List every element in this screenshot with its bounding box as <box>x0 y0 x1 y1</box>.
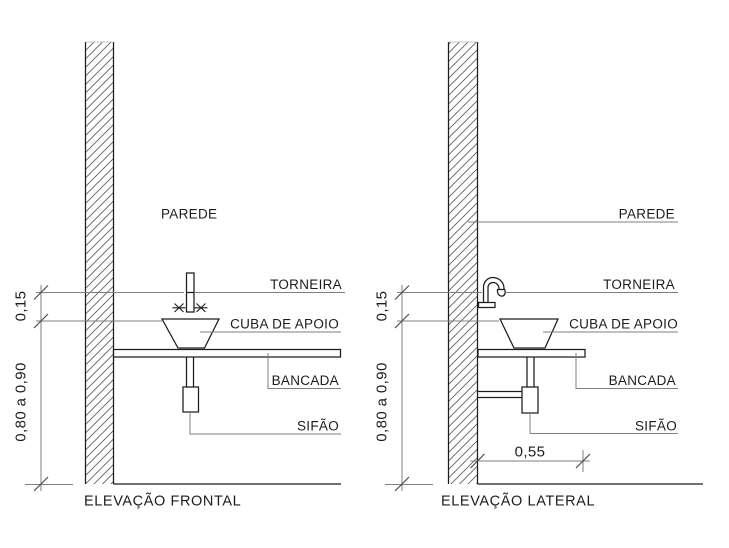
trap-side <box>522 387 538 413</box>
trap-front <box>183 387 199 412</box>
front-label-trap: SIFÃO <box>297 419 339 434</box>
elevation-drawing-canvas: 0,15 0,80 a 0,90 PAREDE TORNEIRA CUBA DE… <box>0 0 729 548</box>
side-label-trap: SIFÃO <box>635 419 677 434</box>
front-label-faucet: TORNEIRA <box>270 277 342 292</box>
side-label-faucet: TORNEIRA <box>603 277 675 292</box>
side-dim-countertop-height: 0,80 a 0,90 <box>374 362 391 441</box>
side-dim-countertop-depth: 0,55 <box>515 444 546 461</box>
front-dim-countertop-height: 0,80 a 0,90 <box>13 362 30 441</box>
technical-drawing: 0,15 0,80 a 0,90 PAREDE TORNEIRA CUBA DE… <box>0 0 729 548</box>
wall-section <box>86 42 114 484</box>
side-label-countertop: BANCADA <box>609 373 676 388</box>
side-elevation-title: ELEVAÇÃO LATERAL <box>441 493 595 510</box>
front-label-countertop: BANCADA <box>272 373 339 388</box>
countertop-side <box>478 350 585 358</box>
countertop-front <box>114 350 341 358</box>
front-label-basin: CUBA DE APOIO <box>230 317 339 332</box>
side-label-wall: PAREDE <box>619 207 675 222</box>
side-label-basin: CUBA DE APOIO <box>569 317 678 332</box>
front-elevation-title: ELEVAÇÃO FRONTAL <box>84 493 241 510</box>
faucet-front <box>187 273 195 312</box>
front-label-wall: PAREDE <box>161 207 217 222</box>
front-dim-faucet-height: 0,15 <box>13 291 30 322</box>
wall-section <box>449 42 478 484</box>
side-dim-faucet-height: 0,15 <box>374 291 391 322</box>
